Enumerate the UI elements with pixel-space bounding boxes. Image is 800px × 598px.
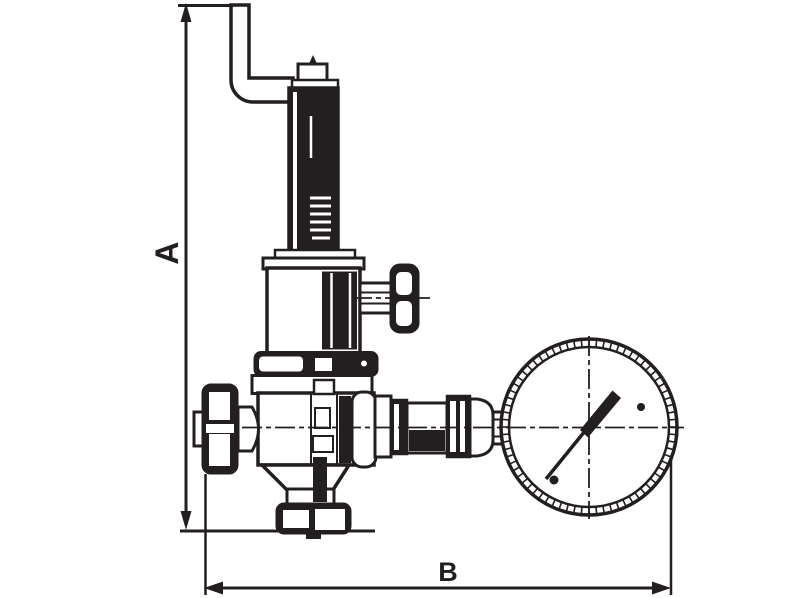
arrowhead-left-icon (204, 582, 223, 595)
spring-housing-shading (322, 272, 357, 350)
hex-nut-shading (409, 430, 445, 451)
inlet-nut-window-top (209, 392, 230, 420)
stem-boss (314, 380, 334, 394)
union-window-right (315, 509, 345, 530)
inlet-nut-window-bottom (209, 434, 230, 466)
outlet-port (352, 392, 376, 467)
inlet-coupling (194, 385, 237, 473)
bonnet-flange (255, 353, 377, 376)
spring-housing (267, 268, 360, 353)
union-window-left (283, 510, 309, 528)
body-taper (262, 465, 349, 490)
dimension-a-label: A (149, 241, 185, 264)
body-shading (339, 396, 351, 463)
technical-drawing-canvas: A B (0, 0, 800, 598)
outlet-tip (306, 533, 321, 539)
vent-pipe-elbow (231, 5, 293, 102)
stem-detail-lower (313, 436, 333, 452)
side-tap-handle-slot-top (396, 272, 412, 295)
inlet-nut-groove (206, 424, 234, 433)
bottom-outlet-union (262, 457, 350, 539)
spring-tube (289, 88, 338, 252)
side-tap-handle-slot-bottom (396, 301, 412, 326)
valve-drawing: A B (0, 0, 800, 598)
arrowhead-right-icon (652, 582, 671, 595)
adjuster-cap (292, 55, 338, 89)
stem-detail-upper (315, 408, 330, 428)
outlet-stem-shading (313, 457, 327, 502)
gauge-dial-dot-left (550, 476, 559, 485)
valve-body (238, 376, 376, 468)
body-upper-band (252, 376, 372, 394)
outlet-fittings (375, 396, 507, 457)
inlet-dome (238, 407, 259, 451)
arrowhead-down-icon (181, 511, 192, 530)
dimension-b-label: B (438, 557, 458, 587)
gauge-dial-dot-right (637, 403, 645, 411)
outlet-collar (375, 396, 391, 457)
